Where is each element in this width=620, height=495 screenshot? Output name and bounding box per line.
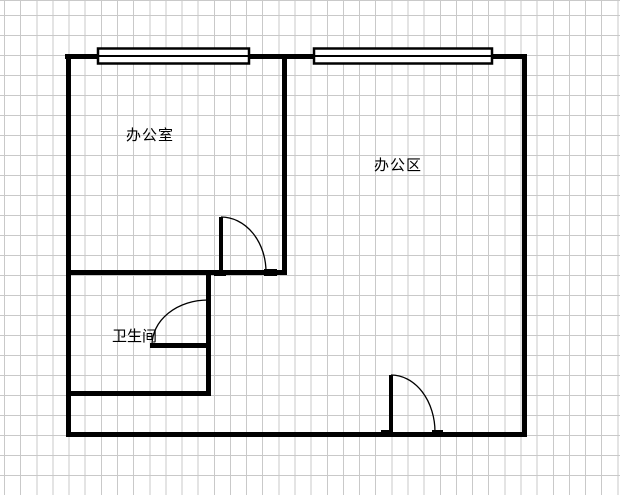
bathroom-right-wall	[206, 270, 211, 396]
entry-door-leaf	[389, 375, 393, 433]
entry-door	[381, 375, 443, 435]
office-divider-wall	[282, 54, 287, 275]
room-label-office: 办公室	[126, 127, 174, 143]
outer-walls	[65, 54, 527, 437]
left-wall	[66, 54, 71, 437]
bathroom-door-leaf	[150, 343, 211, 348]
floor-plan-drawing	[0, 0, 620, 495]
bathroom-door-arc	[152, 300, 208, 345]
right-wall	[522, 54, 527, 437]
room-label-office-area: 办公区	[374, 157, 422, 173]
entry-door-arc	[391, 375, 435, 432]
bottom-wall	[66, 432, 527, 437]
room-label-bathroom: 卫生间	[112, 328, 157, 344]
bathroom-door	[150, 300, 211, 348]
office-bottom-wall	[66, 270, 287, 275]
office-door	[214, 217, 277, 276]
bathroom-bottom-wall	[66, 391, 211, 396]
entry-door-hinge-jamb	[381, 430, 391, 435]
office-door-arc	[221, 217, 266, 272]
window-1	[98, 49, 249, 64]
window-2	[314, 49, 492, 64]
office-door-hinge-jamb	[214, 270, 226, 276]
entry-door-strike-jamb	[432, 430, 443, 435]
drawing-canvas[interactable]: 办公室 办公区 卫生间	[0, 0, 620, 495]
office-door-leaf	[219, 217, 223, 273]
